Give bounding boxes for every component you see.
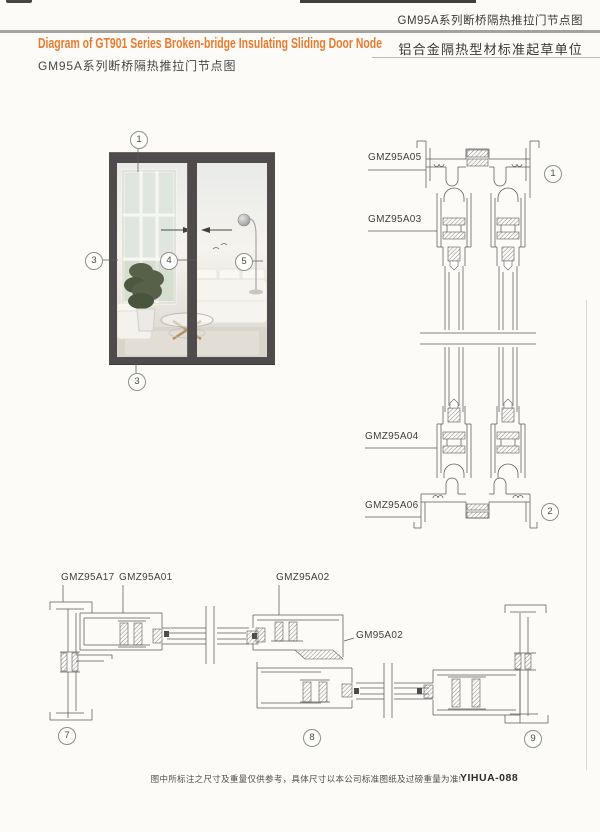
profile-label: GMZ95A06	[365, 500, 419, 511]
horizontal-section	[50, 585, 548, 723]
footer-disclaimer: 图中所标注之尺寸及重量仅供参考，具体尺寸以本公司标准图纸及过磅重量为准!	[150, 773, 462, 785]
vertical-section	[365, 141, 539, 528]
profile-label: GM95A02	[356, 630, 403, 641]
profile-label: GMZ95A02	[276, 572, 330, 583]
section-drawings	[0, 0, 600, 832]
callout-circle: 1	[544, 165, 562, 183]
catalog-page: GM95A系列断桥隔热推拉门节点图 Diagram of GT901 Serie…	[0, 0, 600, 832]
callout-circle: 7	[58, 727, 76, 745]
callout-circle: 8	[303, 729, 321, 747]
callout-circle: 3	[128, 373, 146, 391]
profile-label: GMZ95A04	[365, 431, 419, 442]
callout-circle: 9	[524, 730, 542, 748]
profile-label: GMZ95A01	[119, 572, 173, 583]
page-code: YIHUA-088	[460, 772, 518, 784]
callout-circle: 4	[160, 252, 178, 270]
callout-circle: 2	[541, 503, 559, 521]
callout-circle: 1	[130, 131, 148, 149]
callout-circle: 5	[235, 253, 253, 271]
callout-circle: 3	[85, 252, 103, 270]
profile-label: GMZ95A17	[61, 572, 115, 583]
profile-label: GMZ95A03	[368, 214, 422, 225]
profile-label: GMZ95A05	[368, 152, 422, 163]
